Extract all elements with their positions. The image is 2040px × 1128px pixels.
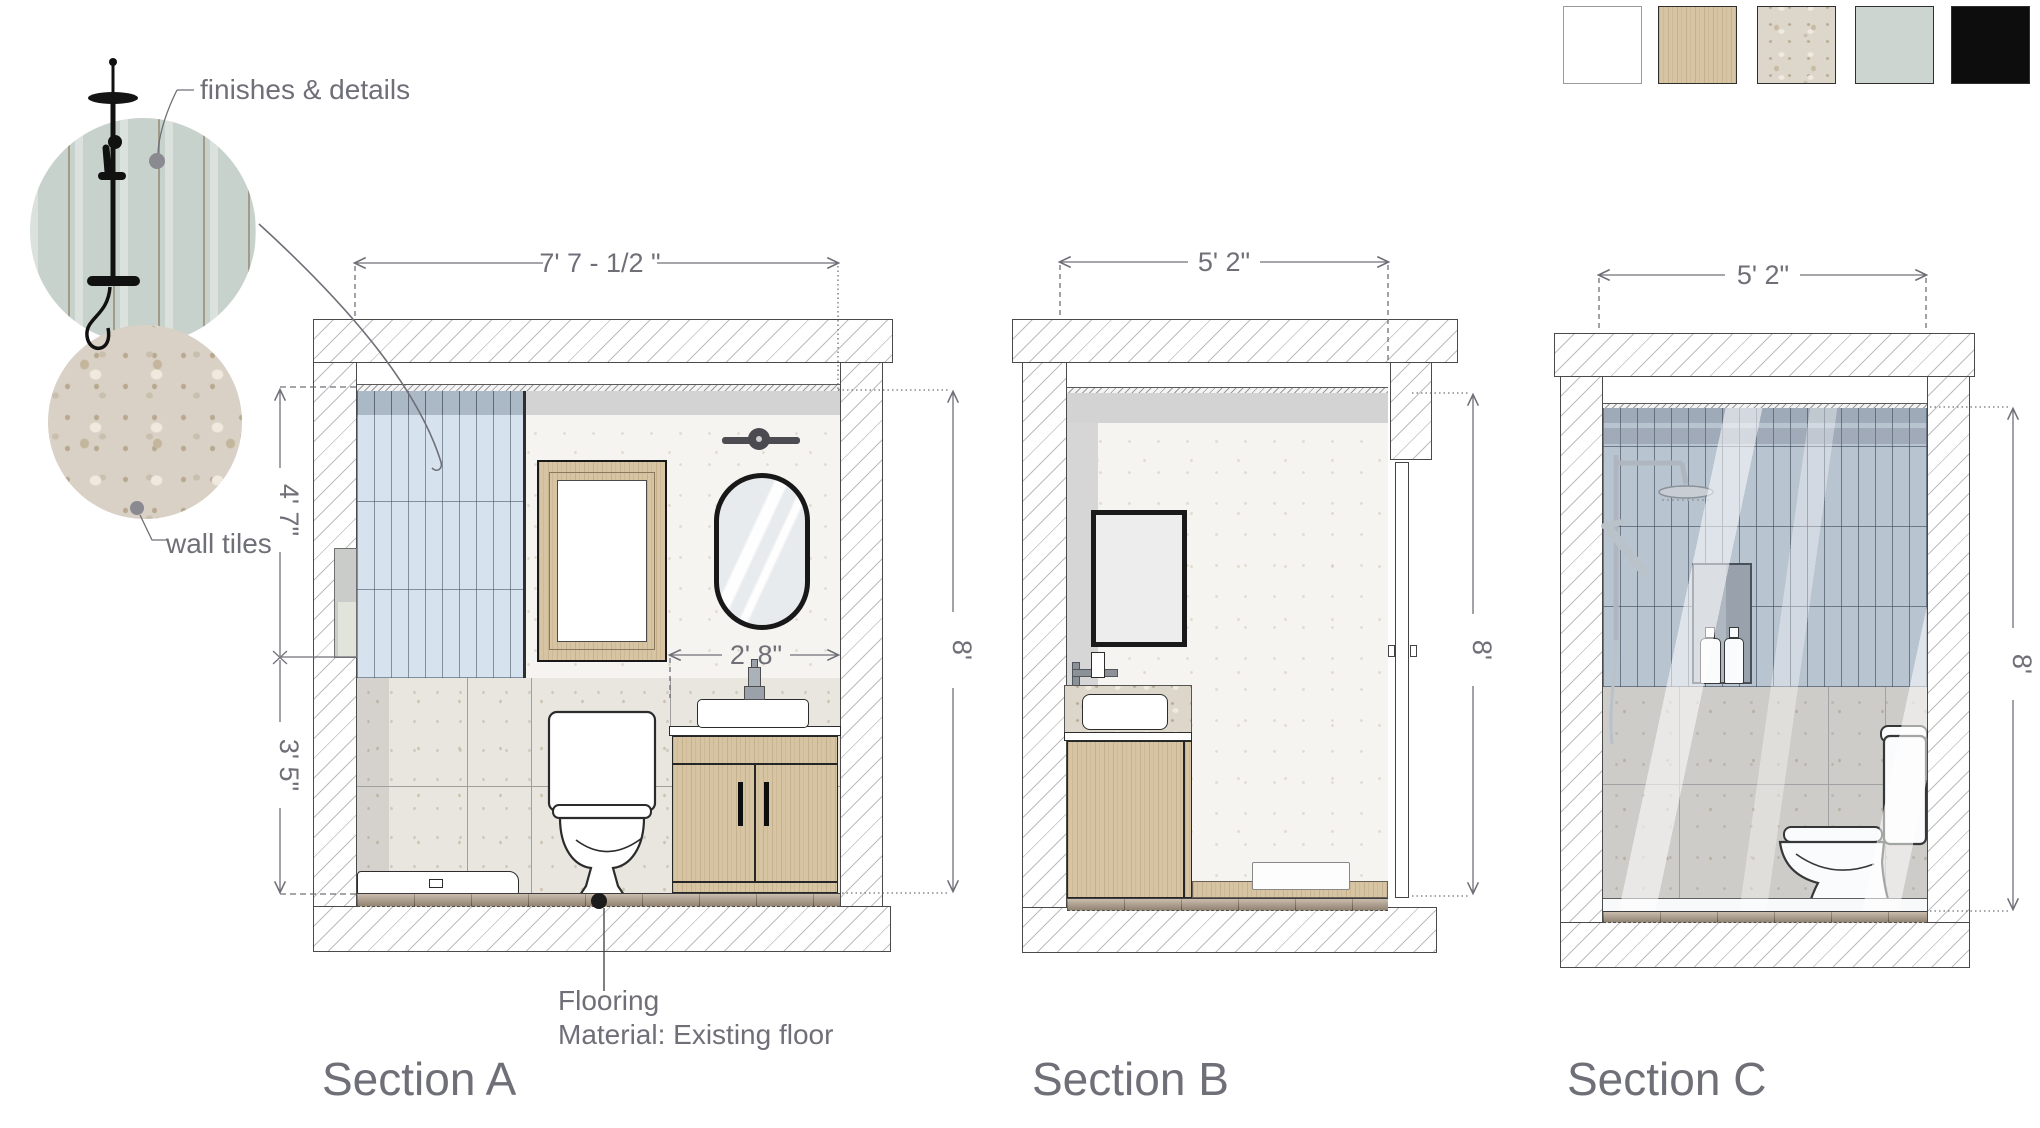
dim-a-lower: 3' 5" [274,739,304,791]
section-c-wall-right [1927,376,1970,968]
section-a-floor-slab [313,906,891,952]
swatch-light-wood [1658,6,1737,84]
flooring-note-line2: Material: Existing floor [558,1018,833,1052]
faucet-base [744,686,765,700]
section-b-tray-box [1252,862,1350,890]
section-b-wall-left [1022,362,1067,953]
section-c-title: Section C [1567,1052,1766,1106]
section-c-wall-cap [1554,333,1975,377]
section-b-wall-right-upper [1390,362,1432,460]
section-a-oval-mirror [714,473,810,630]
dim-c-width: 5' 2" [1737,260,1789,290]
section-b-counter-edge [1064,732,1192,741]
faucet-body [748,667,761,688]
section-a-toilet [546,708,658,898]
wall-sconce-center [756,436,762,442]
section-b-vanity-cabinet [1067,741,1192,898]
vanity-door-divider [754,763,756,881]
tile-joint [670,678,671,727]
section-b-sink-basin [1082,694,1168,730]
swatch-terrazzo [1757,6,1836,84]
swatch-matte-black [1951,6,2030,84]
section-a-shower-drain [429,879,443,888]
section-b-mirror [1091,510,1187,647]
section-a-title: Section A [322,1052,516,1106]
door-handle-right [1410,645,1417,657]
material-swatch-row [1563,6,2033,86]
vanity-handle-right [764,782,769,826]
section-c-floor-tiles [1603,911,1927,923]
section-c-glass-reflections [1603,408,1927,911]
dim-c-height: 8' [2007,654,2037,674]
flooring-note-line1: Flooring [558,984,833,1018]
vanity-handle-left [738,782,743,826]
section-a-wall-cap [313,319,893,363]
dim-b-height: 8' [1467,640,1497,660]
section-b-ceiling-band [1067,362,1388,388]
section-a-shower-control-panel-lower [338,602,356,657]
section-a-vessel-sink [697,699,809,728]
section-c-floor-slab [1560,922,1970,968]
wall-tiles-label: wall tiles [166,528,272,560]
door-handle-left [1388,645,1395,657]
section-b-soap-bottle [1091,652,1105,678]
section-a-ceiling-band [357,362,840,385]
vanity-bottom-rail [672,881,838,883]
swatch-sage-tile [1855,6,1934,84]
section-a-framed-mirror-glass [557,480,647,642]
dim-a-height: 8' [947,640,977,660]
section-c-ceiling-band [1603,376,1927,404]
section-a-shower-tiles [357,415,523,678]
section-a-shower-glass-edge [523,391,526,678]
dim-b-width: 5' 2" [1198,247,1250,277]
section-a-floor-tiles [357,893,840,907]
section-b-title: Section B [1032,1052,1229,1106]
section-b-cabinet-stile [1183,741,1185,898]
section-a-wall-right [840,362,883,908]
finishes-details-label: finishes & details [200,74,410,106]
section-b-wall-cap [1012,319,1458,363]
section-b-floor-slab [1022,907,1437,953]
flooring-note: Flooring Material: Existing floor [558,984,833,1052]
bathroom-elevation-sheet: finishes & details wall tiles [0,0,2040,1128]
section-b-floor-tiles [1067,898,1388,911]
section-a-shower-tile-top-band [357,391,523,415]
dim-a-width: 7' 7 - 1/2 " [539,248,660,278]
section-b-door-leaf [1395,462,1409,898]
section-b-soffit [1067,393,1388,423]
swatch-white-paint [1563,6,1642,84]
